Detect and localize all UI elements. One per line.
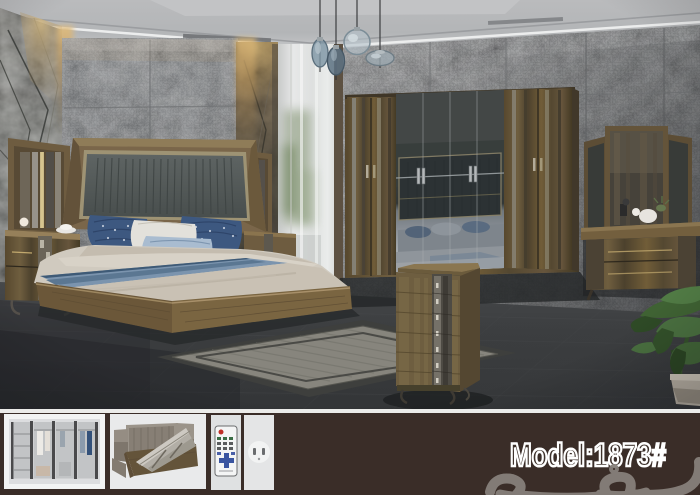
svg-text:Model:1873#: Model:1873# (510, 437, 666, 473)
